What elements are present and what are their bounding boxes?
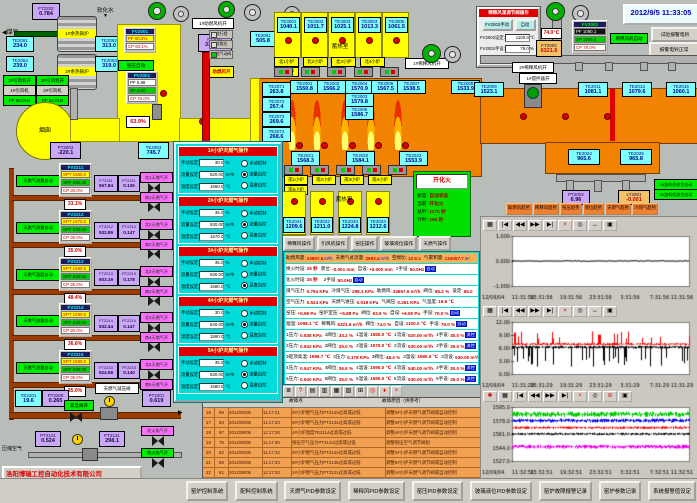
nav-button[interactable]: 窑炉控制系统 bbox=[186, 481, 228, 501]
trend-button[interactable]: 天燃气趋势 bbox=[605, 203, 631, 215]
control-mode-radio[interactable]: 流量自控 bbox=[241, 321, 266, 328]
lock-icon[interactable]: ♦ bbox=[379, 386, 390, 397]
setpoint-input[interactable]: 30.0 bbox=[199, 309, 224, 317]
nav-button[interactable]: 稀释风PID参数设定 bbox=[348, 481, 405, 501]
spt-value: SPT 1580.0 bbox=[61, 265, 90, 272]
radio-icon[interactable] bbox=[241, 282, 248, 289]
te-box: TE2073269.6 bbox=[262, 112, 291, 127]
south-burner-labels: 南1小炉南2小炉南3小炉南4小炉南5小炉 bbox=[284, 175, 419, 184]
te-box: TE20431224.8 bbox=[339, 217, 361, 233]
gas-mode-label: 天燃气流量自动 bbox=[16, 362, 60, 374]
setpoint-input[interactable]: 530.00 bbox=[199, 271, 224, 279]
mode-chip: 自动 bbox=[425, 266, 435, 272]
te2061-box: TE2061234.0 bbox=[6, 36, 34, 52]
level-trend-chart bbox=[482, 232, 695, 302]
save-icon[interactable]: ▣ bbox=[603, 220, 617, 231]
air-valve-icon bbox=[82, 448, 98, 461]
temperature-trend-chart bbox=[482, 403, 695, 477]
waste-heat-boiler-1: 1#余热锅炉 bbox=[57, 16, 97, 52]
burner-label: 南2小炉 bbox=[312, 175, 336, 185]
operation-button[interactable]: 天燃气操作 bbox=[419, 236, 451, 251]
setpoint-input[interactable]: 520.00 bbox=[199, 171, 224, 179]
control-mode-radio[interactable]: 手动控制 bbox=[241, 260, 266, 267]
burner-label: 北1小炉 bbox=[274, 57, 299, 67]
gas-control-row: 天燃气流量自动 FV2212 SPT 1570.0 SPF 530.00 CP … bbox=[0, 210, 180, 257]
spt-value: SPT 1580.0 bbox=[61, 358, 90, 365]
ft-box: FT2211557.84 bbox=[94, 175, 118, 192]
control-mode-radio[interactable]: 手动控制 bbox=[241, 360, 266, 367]
dilution-fan-icon bbox=[422, 44, 441, 63]
burner-indicator bbox=[301, 67, 320, 77]
regenerator-box: TE30011040.1 bbox=[274, 12, 301, 58]
setpoint-row: 流量设定:540.00 m³/h bbox=[181, 321, 234, 329]
first-icon[interactable]: |◀ bbox=[498, 220, 512, 231]
trend-button[interactable]: 稀释风趋势 bbox=[533, 203, 559, 215]
setpoint-input[interactable]: 530.00 bbox=[199, 371, 224, 379]
alarm-row[interactable]: 16 96 2012/09/05 11:17:21 3#小炉燃气压力PT2123… bbox=[203, 408, 481, 418]
south-flame-air-label: 南火焰气开 bbox=[141, 448, 174, 458]
panel-title: 5#小炉天燃气操作 bbox=[179, 347, 277, 356]
fv2001-cp: CP 60.1% bbox=[126, 43, 154, 50]
fv2002-controller[interactable]: FV2002 PF 1090.1 SP 1100.0 CP 79.0% bbox=[572, 20, 608, 54]
mode-chip: 自动 bbox=[353, 277, 363, 283]
control-mode-radio[interactable]: 流量自控 bbox=[241, 371, 266, 378]
operation-button[interactable]: 窑压操作 bbox=[351, 236, 378, 251]
spt-value: SPT 1590.0 bbox=[61, 311, 90, 318]
close-icon[interactable]: × bbox=[391, 386, 402, 397]
setpoint-row: 手动设定:35.0 % bbox=[181, 209, 229, 217]
te-box: TE30031025.1 bbox=[331, 17, 354, 33]
north-regen-label: 蓄热室 bbox=[318, 42, 362, 50]
spf-value: SPF 530.00 bbox=[61, 366, 90, 373]
dilution-auto-label: 稀释风机自动 bbox=[610, 33, 648, 44]
te-box: TE2025965.8 bbox=[620, 149, 652, 165]
data-row: 煤气压力:0.794 KPa冷煤气压:298.1 KPa助燃风:33657.6 … bbox=[285, 286, 478, 296]
radio-icon[interactable] bbox=[241, 171, 248, 178]
radio-icon[interactable] bbox=[241, 321, 248, 328]
fv2002-manual-button[interactable]: FV2002手动 bbox=[482, 19, 513, 31]
te-box: TE20221584.1 bbox=[346, 151, 375, 166]
te-box: TE20421211.0 bbox=[311, 217, 333, 233]
switch-indicator bbox=[211, 52, 217, 58]
control-mode-radio[interactable]: 流量自控 bbox=[241, 221, 266, 228]
setpoint-input[interactable]: 1570.0 bbox=[199, 233, 224, 241]
grid2-icon[interactable]: ▥ bbox=[319, 386, 330, 397]
first-icon[interactable]: |◀ bbox=[513, 391, 527, 402]
radio-icon[interactable] bbox=[241, 382, 248, 389]
north-valve-open-label: 北4天燃气开 bbox=[140, 312, 173, 323]
setpoint-input[interactable]: 35.0 bbox=[199, 209, 224, 217]
arrow-right-icon: ▶ bbox=[178, 409, 183, 416]
trend-buttons: 助燃风趋势稀释风趋势窑压趋势液位趋势天燃气趋势冷煤气趋势 bbox=[506, 203, 697, 215]
te-box: TE20441212.6 bbox=[367, 217, 389, 233]
gas-bottom-pipe bbox=[9, 412, 181, 419]
close-icon[interactable]: × bbox=[558, 306, 572, 317]
gas-controller[interactable]: FV2214 SPT 1590.0 SPF 540.00 CP 30.0% bbox=[59, 303, 92, 337]
control-mode-radio[interactable]: 温度自控 bbox=[241, 232, 266, 239]
burner-indicator bbox=[388, 165, 407, 175]
burner-gas-panel: 4#小炉天燃气操作 手动设定:30.0 %流量设定:540.00 m³/h温度设… bbox=[178, 296, 278, 344]
radio-icon[interactable] bbox=[241, 332, 248, 339]
gas-controller[interactable]: FV2212 SPT 1570.0 SPF 530.00 CP 35.0% bbox=[59, 210, 92, 244]
pressure-trend-chart bbox=[482, 318, 695, 390]
ft2002-box: FT20026321.6 bbox=[536, 40, 562, 57]
close-icon[interactable]: × bbox=[573, 391, 587, 402]
gas-controller[interactable]: FV2213 SPT 1580.0 SPF 530.00 CP 35.0% bbox=[59, 257, 92, 291]
controller-tag: FV2214 bbox=[61, 305, 90, 310]
grid4-icon[interactable]: ▧ bbox=[343, 386, 354, 397]
gas-controller[interactable]: FV2215 SPT 1580.0 SPF 530.00 CP 35.0% bbox=[59, 350, 92, 384]
radio-icon[interactable] bbox=[241, 310, 248, 317]
north-valve-open-label: 北2天燃气开 bbox=[140, 219, 173, 230]
fv2002-sp: SP 1100.0 bbox=[574, 36, 606, 43]
gauge-icon bbox=[72, 434, 83, 445]
control-mode-radio[interactable]: 手动控制 bbox=[241, 160, 266, 167]
panel-title: 4#小炉天燃气操作 bbox=[179, 297, 277, 306]
duct-dot1 bbox=[160, 90, 167, 97]
valve-position-value: 48.4% bbox=[64, 293, 86, 304]
te2064-box: TE2064239.0 bbox=[6, 56, 34, 72]
gauge-icon bbox=[104, 396, 115, 407]
setpoint-input[interactable]: 1580.0 bbox=[199, 383, 224, 391]
control-mode-radio[interactable]: 温度自控 bbox=[241, 182, 266, 189]
burner-indicator bbox=[327, 67, 346, 77]
radio-icon[interactable] bbox=[241, 160, 248, 167]
data-row: 换火时设:25 秒液位:-0.001 mm自设:+0.000 mm1手设:50.… bbox=[285, 264, 478, 274]
radio-icon[interactable] bbox=[241, 260, 248, 267]
save-icon[interactable]: ▣ bbox=[603, 306, 617, 317]
fv2002-manual-input[interactable]: 79.0 bbox=[505, 45, 530, 53]
gas-reducer-label: 天燃气减压阀 bbox=[95, 383, 139, 394]
forward-icon[interactable]: ▶▶ bbox=[528, 306, 542, 317]
rewind-icon[interactable]: ◀◀ bbox=[513, 220, 527, 231]
controller-tag: FV2215 bbox=[61, 352, 90, 357]
reversal-status-panel: 开化火 状态: 自动状态 当前: 开化火 总时: 1175 秒 计时: 269 … bbox=[413, 171, 471, 237]
ft-box: FT2212532.89 bbox=[94, 222, 118, 239]
te-box: TE20051586.7 bbox=[345, 106, 374, 120]
alarm-row[interactable]: 17 84 2012/09/05 11:17:23 4#小炉燃气压力PT2124… bbox=[203, 418, 481, 428]
target-icon[interactable]: ◎ bbox=[367, 386, 378, 397]
fan-icon bbox=[244, 4, 261, 21]
radio-icon[interactable] bbox=[241, 371, 248, 378]
spt-value: SPT 1570.0 bbox=[61, 218, 90, 225]
compressed-air-label: 压缩空气 bbox=[2, 445, 22, 452]
totals-row: 助燃风量:33657.6m³/h天燃气总流量:2693.4m³/h空燃比:12.… bbox=[285, 253, 478, 263]
trend-button[interactable]: 助燃风趋势 bbox=[506, 203, 532, 215]
radio-icon[interactable] bbox=[241, 221, 248, 228]
last-icon[interactable]: ▶| bbox=[543, 306, 557, 317]
te-box: TE20151060.1 bbox=[666, 82, 696, 97]
te-box: TE20071538.5 bbox=[397, 80, 426, 94]
valve-icon bbox=[152, 436, 164, 446]
setpoint-input[interactable]: 540.00 bbox=[199, 321, 224, 329]
radio-icon[interactable] bbox=[241, 360, 248, 367]
grid-icon[interactable]: ▦ bbox=[498, 391, 512, 402]
fan-icon bbox=[444, 46, 461, 63]
gas-control-row: 天燃气流量自动 FV2214 SPT 1590.0 SPF 540.00 CP … bbox=[0, 303, 180, 350]
te-box: TE20031579.8 bbox=[345, 93, 374, 107]
fire-status: 开化火 bbox=[416, 174, 468, 189]
fv2002-setpoint-input[interactable]: 1100.0 bbox=[505, 34, 530, 42]
setpoint-input[interactable]: 530.00 bbox=[199, 221, 224, 229]
gas-controller[interactable]: FV2211 SPT 1560.0 SPF 520.00 CP 30.0% bbox=[59, 163, 92, 197]
te-box: TE30021011.7 bbox=[304, 17, 327, 33]
te2053-box: TE2053745.7 bbox=[138, 142, 169, 159]
regenerator-box: TE30021011.7 bbox=[301, 12, 328, 58]
fv2001-pf: PF 60.2% bbox=[126, 35, 154, 42]
dilution-temp-value: 74.0℃ bbox=[541, 28, 562, 39]
burner-label: 北4小炉 bbox=[360, 57, 385, 67]
data-row: 1压力:0.538 KPa1阀位:33.2 %1温设:1560.0 ℃1流设:5… bbox=[285, 330, 478, 340]
te-box: TE2071263.8 bbox=[262, 82, 291, 97]
combustion-air-on-label: 助燃风开 bbox=[209, 66, 234, 78]
boiler1-label: 1#余热锅炉 bbox=[58, 29, 96, 38]
setpoint-row: 温度设定:1580.0 ℃ bbox=[181, 383, 230, 391]
burner-label: 北2小炉 bbox=[303, 57, 328, 67]
status-row: 计时: 269 秒 bbox=[414, 215, 470, 223]
fan-icon bbox=[148, 2, 166, 20]
pt-box: PT22140.147 bbox=[118, 315, 140, 332]
cursor-icon[interactable]: ✱ bbox=[483, 391, 497, 402]
alarm-row[interactable]: 21 85 2012/09/05 11:17:33 5#小炉燃气压力PT2125… bbox=[203, 458, 481, 468]
data-row: 5压力:0.540 KPa5阀位:35.0 %5温设:1580.0 ℃5流设:5… bbox=[285, 374, 478, 384]
zoom-icon[interactable]: ◎ bbox=[573, 220, 587, 231]
valve-position-value: 35.0% bbox=[64, 246, 86, 257]
burner-label: 南3小炉 bbox=[340, 175, 364, 185]
scada-screen: ◀煤气 FT22020.784 软化水 ▼ 1#余热锅炉 2#余热锅炉 TE20… bbox=[0, 0, 697, 503]
nav-button[interactable]: 天燃气PID参数设定 bbox=[284, 481, 341, 501]
burner-indicator bbox=[310, 165, 329, 175]
alarm-row[interactable]: 20 82 2012/09/05 11:17:32 2#小炉燃气压力PT2122… bbox=[203, 448, 481, 458]
te-box: TE2072267.4 bbox=[262, 97, 291, 112]
regenerator-box: TE30041013.3 bbox=[355, 12, 382, 58]
kiln-pressure-auto-label: 窑压自动 bbox=[118, 60, 154, 71]
chart3-toolbar: ✱▦|◀◀◀▶▶▶|×◎⊘▣ bbox=[483, 391, 632, 402]
operation-button[interactable]: 引风机操作 bbox=[317, 236, 349, 251]
burner-label: 南1小炉 bbox=[284, 175, 308, 185]
controller-tag: FV2213 bbox=[61, 259, 90, 264]
last-icon[interactable]: ▶| bbox=[543, 220, 557, 231]
te2051-box: TE2051505.8 bbox=[250, 31, 276, 47]
ft-box: FT2214532.44 bbox=[94, 315, 118, 332]
control-mode-radio[interactable]: 温度自控 bbox=[241, 332, 266, 339]
rewind-icon[interactable]: ◀◀ bbox=[513, 306, 527, 317]
setpoint-input[interactable]: 35.0 bbox=[199, 259, 224, 267]
setpoint-row: 流量设定:530.00 m³/h bbox=[181, 271, 234, 279]
north-valve-open-label: 北1天燃气开 bbox=[140, 172, 173, 183]
cp-value: CP 35.0% bbox=[61, 234, 90, 241]
gas-control-row: 天燃气流量自动 FV2211 SPT 1560.0 SPF 520.00 CP … bbox=[0, 163, 180, 210]
forward-icon[interactable]: ▶▶ bbox=[528, 220, 542, 231]
fv2002-pv: PF 1090.1 bbox=[574, 28, 606, 35]
flame-icon bbox=[311, 88, 323, 150]
first-icon[interactable]: |◀ bbox=[498, 306, 512, 317]
gas-mode-label: 天燃气流量自动 bbox=[16, 315, 60, 327]
emergency-valve-label: 紧急阀开 bbox=[64, 400, 94, 411]
regenerator-box: TE30031025.1 bbox=[328, 12, 355, 58]
alarm-toolbar: ≣?▤▥▦▧⊞◎♦× bbox=[283, 386, 480, 397]
reason-column-header: 故障原因（供参考） bbox=[382, 398, 423, 404]
list-icon[interactable]: ≣ bbox=[283, 386, 294, 397]
chart1-toolbar: ▦|◀◀◀▶▶▶|×◎↔▣ bbox=[483, 220, 617, 231]
last-icon[interactable]: ▶| bbox=[558, 391, 572, 402]
valve-position-value: 33.1% bbox=[64, 199, 86, 210]
control-mode-radio[interactable]: 手动控制 bbox=[241, 210, 266, 217]
te2201-box: TE220119.6 bbox=[15, 390, 42, 407]
setpoint-input[interactable]: 35.0 bbox=[199, 359, 224, 367]
pt-box: PT22150.140 bbox=[118, 362, 140, 379]
nav-button[interactable]: 系统报警值设定 bbox=[648, 481, 696, 501]
data-row: 空气压力:0.524 KPa天燃气进压:0.019 KPa气阀压:0.261 K… bbox=[285, 297, 478, 307]
alarm-row[interactable]: 18 97 2012/09/05 11:17:26 4#小炉温度TE2114过高… bbox=[203, 428, 481, 438]
setpoint-row: 温度设定:1580.0 ℃ bbox=[181, 283, 230, 291]
setpoint-row: 流量设定:530.00 m³/h bbox=[181, 371, 234, 379]
grid3-icon[interactable]: ▦ bbox=[331, 386, 342, 397]
nav-button[interactable]: 窑压PID参数设定 bbox=[412, 481, 463, 501]
burner-label: 北3小炉 bbox=[331, 57, 356, 67]
close-icon[interactable]: × bbox=[558, 220, 572, 231]
burner-indicator bbox=[380, 67, 399, 77]
panel-title: 3#小炉天燃气操作 bbox=[179, 247, 277, 256]
rewind-icon[interactable]: ◀◀ bbox=[528, 391, 542, 402]
gas-control-rows: 天燃气流量自动 FV2211 SPT 1560.0 SPF 520.00 CP … bbox=[0, 160, 200, 400]
radio-icon[interactable] bbox=[241, 232, 248, 239]
mode-chip: 自动 bbox=[456, 321, 466, 327]
te-box: TE2074268.6 bbox=[262, 127, 291, 142]
alarm-row[interactable]: 19 75 2012/09/05 11:17:30 窑压空气压力PT2122过高… bbox=[203, 438, 481, 448]
burner-indicator bbox=[336, 165, 355, 175]
data-row: 2压力:0.542 KPa2阀位:35.0 %2温设:1570.0 ℃2流设:5… bbox=[285, 341, 478, 351]
te-box: TE20231553.9 bbox=[399, 151, 428, 166]
dilution-fan2-on-label: 2#稀释风机开 bbox=[512, 62, 554, 73]
valve-icon bbox=[70, 412, 82, 422]
te-box: TE30051061.5 bbox=[385, 17, 408, 33]
pv2001-cp: CP 70.0% bbox=[128, 95, 156, 102]
burner-gas-popup: 1#小炉天燃气操作 手动设定:30.0 %流量设定:520.00 m³/h温度设… bbox=[174, 142, 282, 402]
window-icon[interactable]: ⊞ bbox=[355, 386, 366, 397]
trend-button[interactable]: 液位趋势 bbox=[583, 203, 605, 215]
setpoint-input[interactable]: 1590.0 bbox=[199, 333, 224, 341]
control-mode-radio[interactable]: 温度自控 bbox=[241, 282, 266, 289]
te-box: TE30041013.3 bbox=[358, 17, 381, 33]
flue-duct-left bbox=[70, 118, 120, 142]
stop-icon[interactable]: ⊘ bbox=[603, 391, 617, 402]
control-mode-radio[interactable]: 流量自控 bbox=[241, 271, 266, 278]
gas-control-row: 天燃气温度自动 FV2213 SPT 1580.0 SPF 530.00 CP … bbox=[0, 257, 180, 304]
zoom-icon[interactable]: ◎ bbox=[573, 306, 587, 317]
setpoint-input[interactable]: 1580.0 bbox=[199, 283, 224, 291]
mode-chip: 流控 bbox=[465, 376, 475, 382]
te-box: TE20091523.1 bbox=[474, 82, 504, 97]
te-box: TE20211568.3 bbox=[291, 151, 320, 166]
radio-icon[interactable] bbox=[241, 210, 248, 217]
te-box: TE20111081.1 bbox=[578, 82, 608, 97]
nav-button[interactable]: 玻璃液位PID参数设定 bbox=[470, 481, 532, 501]
spf-value: SPF 520.00 bbox=[61, 179, 90, 186]
trend-button[interactable]: 窑压趋势 bbox=[560, 203, 582, 215]
combustion-fan1-on-label: 1#助燃风机开 bbox=[192, 18, 234, 29]
process-data-panel: 助燃风量:33657.6m³/h天燃气总流量:2693.4m³/h空燃比:12.… bbox=[283, 251, 480, 385]
stirrer-on-label: 1#搅拌器开 bbox=[519, 73, 557, 84]
gas-mode-label: 天燃气流量自动 bbox=[16, 222, 60, 234]
north-valve-open-label: 北3天燃气开 bbox=[140, 266, 173, 277]
fv2001-controller[interactable]: FV2001 PF 60.2% CP 60.1% bbox=[124, 27, 156, 53]
setpoint-input[interactable]: 30.0 bbox=[199, 159, 224, 167]
grid-icon[interactable]: ▦ bbox=[483, 220, 497, 231]
data-row: 4压力:0.547 KPa4阀位:36.6 %4温设:1590.0 ℃4流设:5… bbox=[285, 363, 478, 373]
grid1-icon[interactable]: ▤ bbox=[307, 386, 318, 397]
stirrer-motor-icon bbox=[524, 84, 542, 108]
test-bell-button[interactable]: 试验报警电铃 bbox=[651, 27, 697, 42]
control-mode-radio[interactable]: 流量自控 bbox=[241, 171, 266, 178]
status-row: 状态: 自动状态 bbox=[414, 191, 470, 199]
operation-button[interactable]: 玻璃液位操作 bbox=[380, 236, 417, 251]
boiler-pipe bbox=[70, 88, 78, 120]
radio-icon[interactable] bbox=[241, 182, 248, 189]
data-row: 化火时设:25 秒2手设:50.0Hz自动 bbox=[285, 275, 478, 285]
regenerator-box: TE20411209.6 bbox=[282, 191, 306, 235]
dilution-fan2-icon bbox=[546, 2, 565, 21]
pt-box: PT22110.136 bbox=[118, 175, 140, 192]
range-icon[interactable]: ↔ bbox=[588, 220, 602, 231]
alarm-row[interactable]: 22 81 2012/09/05 11:17:33 1#小炉燃气压力PT2121… bbox=[203, 468, 481, 478]
operation-button[interactable]: 稀释风操作 bbox=[283, 236, 315, 251]
setpoint-row: 温度设定:1560.0 ℃ bbox=[181, 183, 230, 191]
gas-mode-label: 天燃气温度自动 bbox=[16, 269, 60, 281]
range-icon[interactable]: ↔ bbox=[588, 306, 602, 317]
forward-icon[interactable]: ▶▶ bbox=[543, 391, 557, 402]
control-mode-radio[interactable]: 手动控制 bbox=[241, 310, 266, 317]
south-regen-label: 蓄热室 bbox=[322, 195, 366, 203]
nav-button[interactable]: 窑炉故障报警记录 bbox=[539, 481, 592, 501]
panel-title: 1#小炉天燃气操作 bbox=[179, 147, 277, 156]
fv2002-auto-button[interactable]: 自动 bbox=[515, 19, 536, 31]
nav-button[interactable]: 窑炉参数记录 bbox=[599, 481, 641, 501]
setpoint-row: 手动设定:35.0 % bbox=[181, 359, 229, 367]
gas-mode-label: 天燃气流量自动 bbox=[16, 175, 60, 187]
te-box: TE20041570.9 bbox=[345, 80, 374, 94]
fan-icon bbox=[173, 6, 189, 22]
switch-indicator bbox=[211, 32, 217, 38]
radio-icon[interactable] bbox=[241, 271, 248, 278]
spf-value: SPF 530.00 bbox=[61, 226, 90, 233]
help-icon[interactable]: ? bbox=[295, 386, 306, 397]
te-box: TE2024965.6 bbox=[568, 149, 600, 165]
regenerator-box: TE30051061.5 bbox=[382, 12, 409, 58]
pv2001-controller[interactable]: PV2001 PF 5.88 SP 6.00 CP 70.0% bbox=[126, 71, 158, 104]
grid-icon[interactable]: ▦ bbox=[483, 306, 497, 317]
zoom-icon[interactable]: ◎ bbox=[588, 391, 602, 402]
setpoint-input[interactable]: 1560.0 bbox=[199, 183, 224, 191]
cp-value: CP 30.0% bbox=[61, 327, 90, 334]
spf-value: SPF 530.00 bbox=[61, 273, 90, 280]
save-icon[interactable]: ▣ bbox=[618, 391, 632, 402]
data-row: 3碹顶高温:1586.7 ℃3压力:0.178 KPa3阀位:48.4 %3温设… bbox=[285, 352, 478, 362]
pv2001-sp: SP 6.00 bbox=[128, 87, 156, 94]
burner-gas-panel: 3#小炉天燃气操作 手动设定:35.0 %流量设定:530.00 m³/h温度设… bbox=[178, 246, 278, 294]
trend-button[interactable]: 冷煤气趋势 bbox=[632, 203, 658, 215]
flue-duct-right bbox=[179, 118, 260, 142]
north-burner-labels: 北1小炉北2小炉北3小炉北4小炉北5小炉 bbox=[274, 57, 409, 66]
south-burner-indicators bbox=[284, 165, 414, 174]
alarm-table: 故障点 故障原因（供参考） 16 96 2012/09/05 11:17:21 … bbox=[202, 397, 482, 481]
mode-chip: 流控 bbox=[465, 343, 475, 349]
pv2001-pf: PF 5.88 bbox=[128, 79, 156, 86]
control-mode-radio[interactable]: 温度自控 bbox=[241, 382, 266, 389]
chart2-toolbar: ▦|◀◀◀▶▶▶|×◎↔▣ bbox=[483, 306, 617, 317]
burner-indicator bbox=[284, 165, 303, 175]
nav-button[interactable]: 配料控制系统 bbox=[235, 481, 277, 501]
